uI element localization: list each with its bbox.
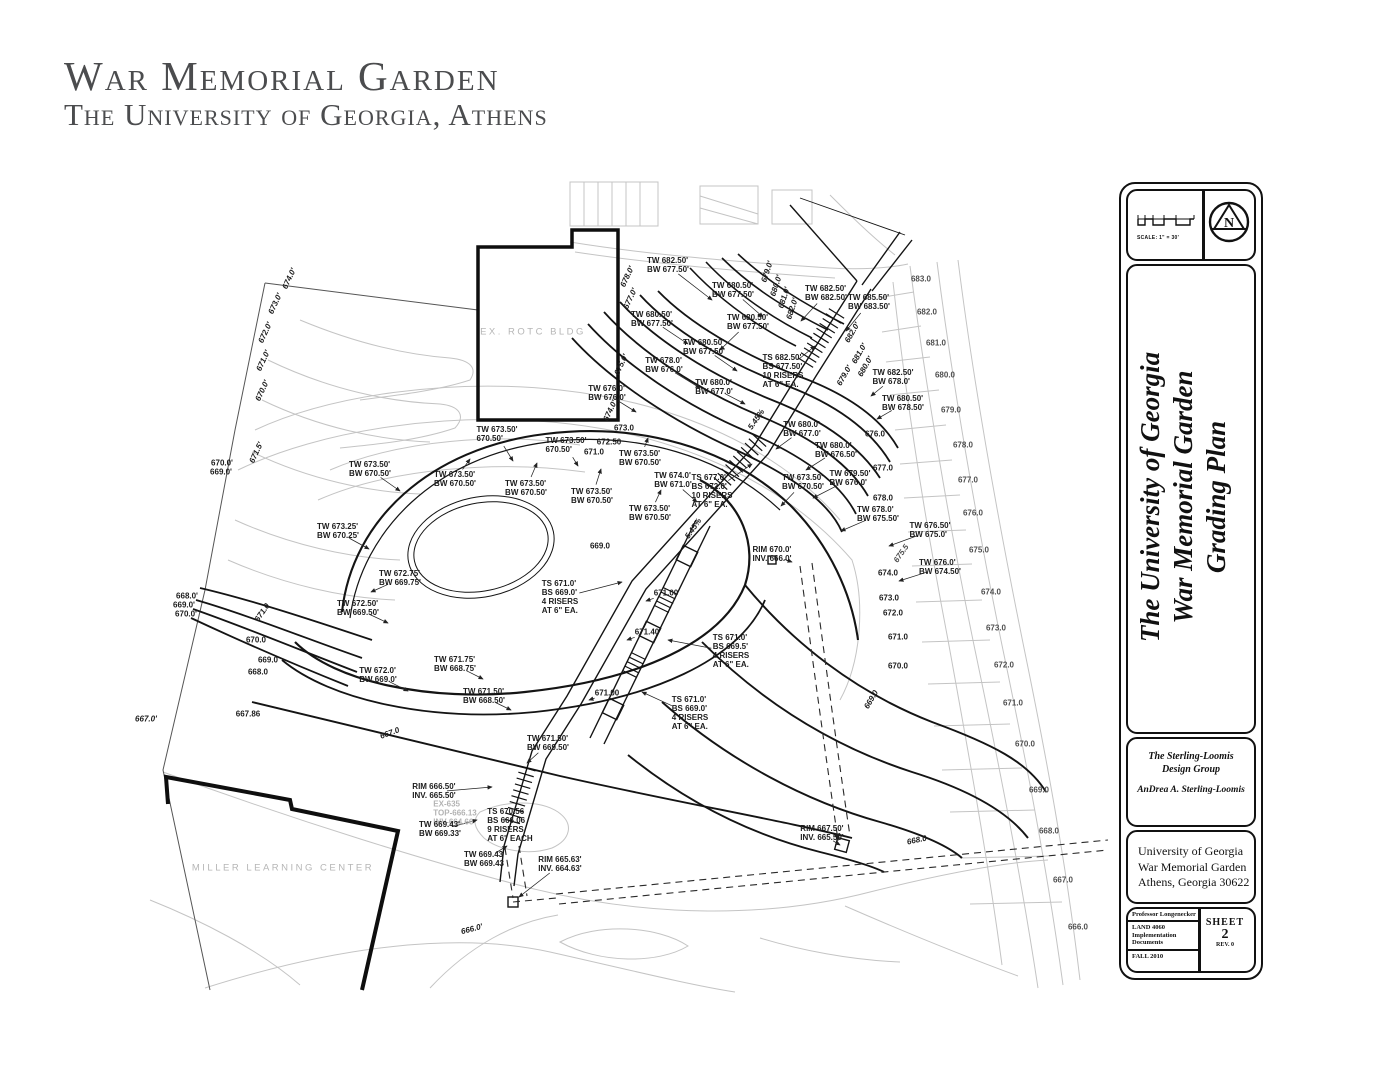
firm-name-line2: Design Group xyxy=(1128,764,1254,777)
property-boundary xyxy=(163,283,478,990)
project-title-line: Grading Plan xyxy=(1200,267,1233,727)
title-block-firm-cell: The Sterling-Loomis Design Group AnDrea … xyxy=(1126,737,1256,827)
project-info-rows: Professor Longenecker LAND 4060 Implemen… xyxy=(1128,909,1198,971)
address-line2: War Memorial Garden xyxy=(1138,860,1254,876)
sheet-revision: REV. 0 xyxy=(1200,942,1250,948)
scale-bar: SCALE: 1" = 30' xyxy=(1128,191,1202,259)
grading-plan-sheet: War Memorial Garden The University of Ge… xyxy=(0,0,1400,1081)
firm-name-line1: The Sterling-Loomis xyxy=(1128,751,1254,764)
course-code: LAND 4060 xyxy=(1132,924,1198,931)
project-title-line: The University of Georgia xyxy=(1134,267,1167,727)
sheet-number: 2 xyxy=(1200,928,1250,942)
scale-bar-graphic xyxy=(1128,191,1202,254)
scale-label: SCALE: 1" = 30' xyxy=(1137,235,1179,241)
title-block-top-cell: SCALE: 1" = 30' N xyxy=(1126,189,1256,261)
firm-author: AnDrea A. Sterling-Loomis xyxy=(1128,785,1254,795)
professor-row: Professor Longenecker xyxy=(1128,909,1198,922)
building-outlines xyxy=(166,230,618,990)
term-row: FALL 2010 xyxy=(1128,951,1198,962)
title-block-address-cell: University of Georgia War Memorial Garde… xyxy=(1126,830,1256,904)
rotc-building-outline xyxy=(478,230,618,420)
existing-contours xyxy=(150,182,1080,992)
sheet-number-block: SHEET 2 REV. 0 xyxy=(1200,909,1250,971)
course-row: LAND 4060 Implementation Documents xyxy=(1128,922,1198,950)
address-line3: Athens, Georgia 30622 xyxy=(1138,875,1254,891)
project-title-vertical: The University of GeorgiaWar Memorial Ga… xyxy=(1134,267,1244,727)
north-letter: N xyxy=(1224,216,1234,231)
walkway xyxy=(398,198,912,907)
miller-learning-center-outline xyxy=(166,777,398,990)
title-block-info-cell: Professor Longenecker LAND 4060 Implemen… xyxy=(1126,907,1256,973)
address-line1: University of Georgia xyxy=(1138,844,1254,860)
project-title-line: War Memorial Garden xyxy=(1167,267,1200,727)
north-arrow-icon: N xyxy=(1204,191,1254,259)
course-documents: Implementation Documents xyxy=(1132,932,1198,947)
